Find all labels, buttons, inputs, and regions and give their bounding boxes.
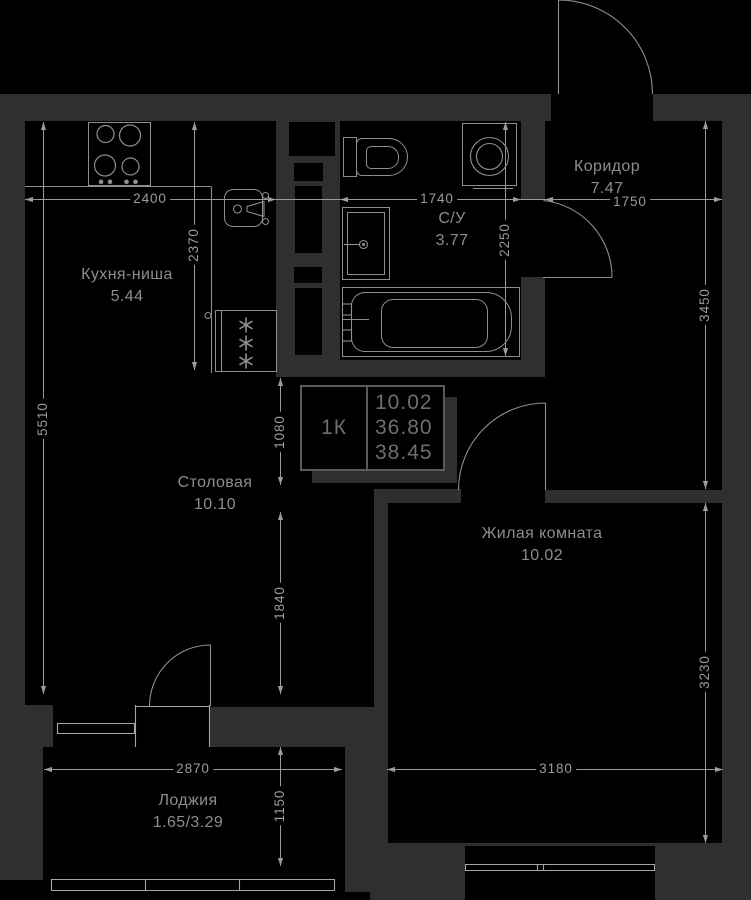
wall-bath-right-lower [521, 277, 545, 377]
wall-corridor-bottom [545, 490, 722, 503]
dim-loggia-height: 1150 [273, 787, 287, 826]
room-name: Столовая [178, 472, 253, 494]
toilet-tank-icon [343, 137, 357, 177]
apartment-type: 1К [302, 387, 368, 469]
entrance-door-icon [559, 0, 653, 94]
total-area-value: 38.45 [375, 441, 443, 465]
stove-icon [88, 122, 151, 186]
room-name: Лоджия [153, 790, 223, 812]
room-label-loggia: Лоджия 1.65/3.29 [153, 790, 223, 834]
loggia-window-icon [51, 879, 335, 891]
room-name: Коридор [574, 156, 640, 178]
dim-hall-height: 1080 [273, 412, 287, 452]
room-label-dining: Столовая 10.10 [178, 472, 253, 516]
dim-corridor-width: 1750 [610, 195, 650, 209]
dim-living-width: 3180 [536, 762, 576, 776]
room-name: Жилая комната [482, 523, 603, 545]
dim-left-height: 5510 [36, 399, 50, 439]
living-room-door-icon [459, 403, 546, 490]
kitchen-sink-icon [224, 189, 263, 227]
wall-loggia-left-pillar [0, 705, 53, 747]
kitchen-zone-knob [205, 313, 211, 319]
living-area-value: 10.02 [375, 391, 443, 415]
balcony-door-icon [150, 645, 211, 706]
room-label-kitchen: Кухня-ниша 5.44 [81, 264, 173, 308]
room-area: 10.02 [482, 545, 603, 567]
room-area: 3.77 [436, 230, 469, 252]
area-value: 36.80 [375, 416, 443, 440]
room-area: 10.10 [178, 494, 253, 516]
wall-bath-bottom [276, 360, 536, 377]
shaft-opening [295, 288, 322, 355]
dim-living-height: 3230 [698, 652, 712, 692]
dim-kitchen-depth: 2370 [187, 225, 201, 265]
dim-bath-width: 1740 [417, 192, 457, 206]
room-area: 5.44 [81, 286, 173, 308]
wall-left [0, 94, 25, 705]
bath-sink-inner [347, 212, 385, 275]
wall-dining-bottom [210, 707, 377, 747]
bathroom-door-opening [521, 200, 545, 277]
dining-window-icon [57, 705, 210, 747]
floor-plan: Кухня-ниша 5.44 Коридор 7.47 С/У 3.77 Ст… [0, 0, 751, 900]
shaft-opening [294, 267, 322, 283]
fridge-icon [215, 310, 277, 372]
wall-top-left [0, 94, 551, 121]
dim-bath-height: 2250 [498, 220, 512, 260]
shaft-opening [294, 163, 323, 181]
living-window-opening [465, 846, 655, 900]
shaft-opening [289, 122, 335, 156]
apartment-info-table: 1К 10.02 36.80 38.45 [300, 385, 445, 471]
room-label-living: Жилая комната 10.02 [482, 523, 603, 567]
room-name: С/У [436, 208, 469, 230]
wall-bath-right-upper [521, 121, 545, 200]
wall-loggia-left [0, 747, 43, 880]
wall-right [722, 121, 751, 900]
room-area: 1.65/3.29 [153, 812, 223, 834]
bathroom-door-icon [543, 201, 612, 278]
dim-kitchen-width: 2400 [130, 192, 170, 206]
room-label-bathroom: С/У 3.77 [436, 208, 469, 252]
room-name: Кухня-ниша [81, 264, 173, 286]
dim-corridor-height: 3450 [698, 285, 712, 325]
dim-loggia-width: 2870 [173, 762, 213, 776]
shaft-opening [295, 186, 322, 253]
toilet-bowl-inner [366, 146, 399, 169]
bathtub-inner [381, 299, 488, 348]
dim-dining-height: 1840 [273, 583, 287, 623]
washing-machine-icon [462, 123, 517, 186]
wall-top-right [653, 94, 751, 121]
